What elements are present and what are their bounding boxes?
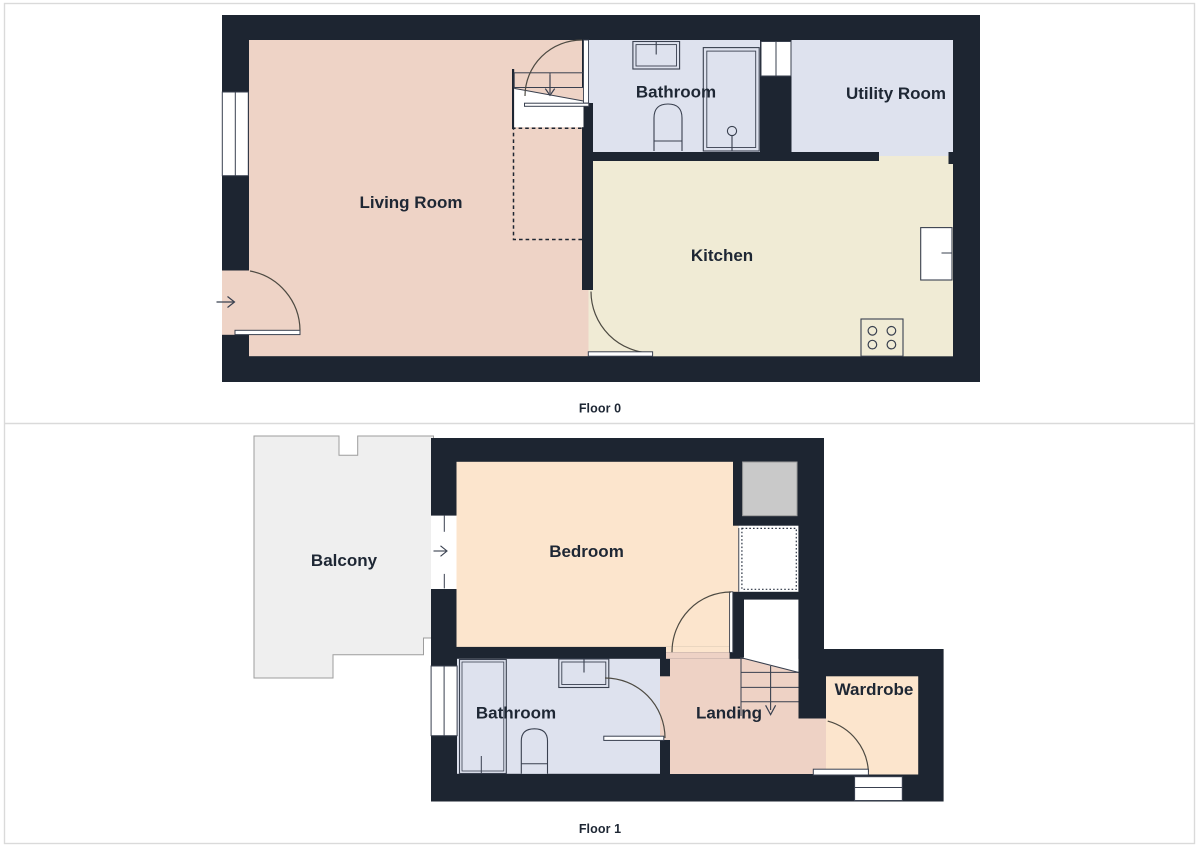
- svg-text:Bathroom: Bathroom: [636, 83, 716, 102]
- svg-text:Floor 1: Floor 1: [579, 822, 621, 836]
- svg-text:Utility Room: Utility Room: [846, 84, 946, 103]
- svg-text:Bedroom: Bedroom: [549, 542, 624, 561]
- svg-text:Balcony: Balcony: [311, 551, 378, 570]
- svg-text:Bathroom: Bathroom: [476, 704, 556, 723]
- svg-text:Landing: Landing: [696, 704, 762, 723]
- svg-text:Kitchen: Kitchen: [691, 246, 753, 265]
- svg-text:Living Room: Living Room: [360, 193, 463, 212]
- svg-text:Floor 0: Floor 0: [579, 402, 621, 416]
- svg-text:Wardrobe: Wardrobe: [835, 680, 914, 699]
